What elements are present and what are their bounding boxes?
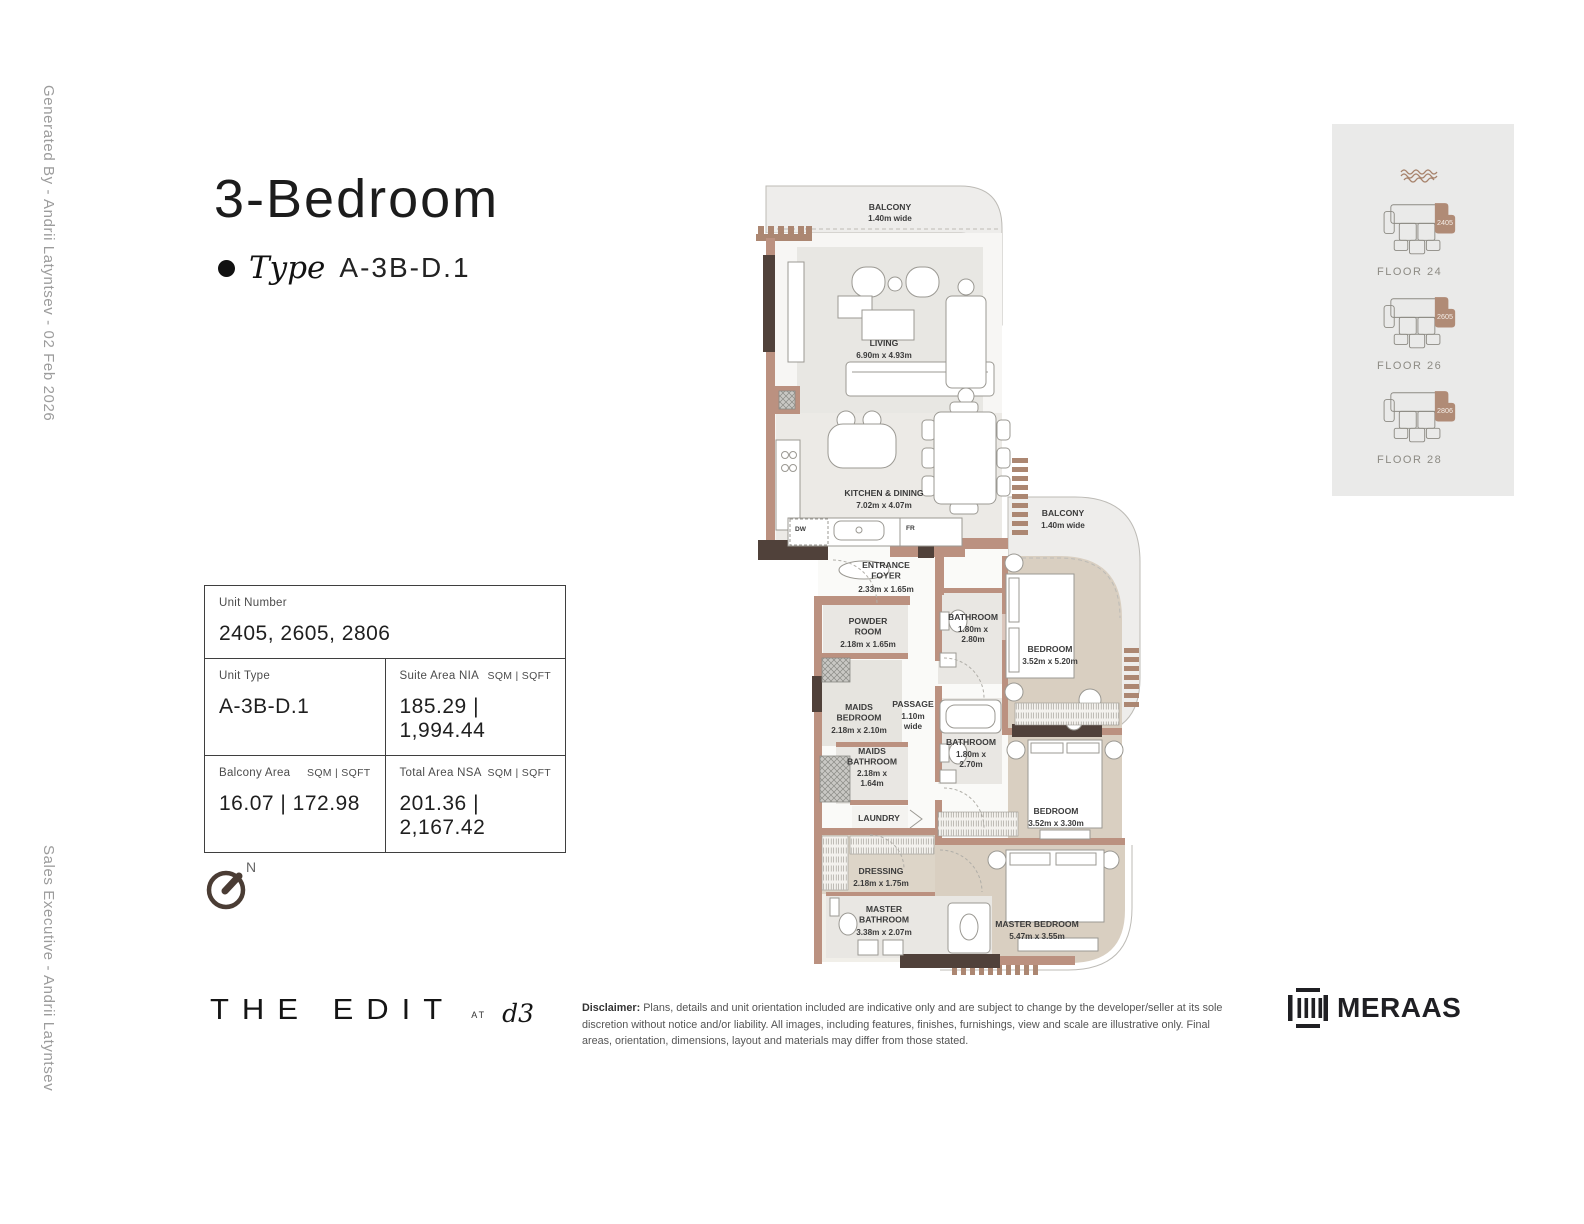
d3-logo: d3 (502, 999, 534, 1028)
meraas-logo: MERAAS (1288, 988, 1461, 1028)
unit-number-label: Unit Number (219, 597, 551, 609)
living-label: LIVING (870, 338, 899, 348)
passage-dims: 1.10mwide (901, 712, 924, 731)
balcony-area-units: SQM | SQFT (307, 767, 370, 779)
balcony-area-cell: Balcony Area SQM | SQFT 16.07 | 172.98 (205, 756, 385, 852)
meraas-wordmark: MERAAS (1337, 992, 1461, 1024)
the-edit-at: AT (471, 1010, 486, 1028)
fridge-label: FR (906, 525, 915, 532)
bedroom2-label: BEDROOM (1034, 806, 1079, 816)
kitchen-label: KITCHEN & DINING (844, 488, 924, 498)
maids-bedroom-dims: 2.18m x 2.10m (831, 726, 887, 735)
total-area-cell: Total Area NSA SQM | SQFT 201.36 | 2,167… (385, 756, 566, 852)
floor-caption-24: FLOOR 24 (1377, 266, 1469, 278)
total-area-label: Total Area NSA (400, 767, 482, 779)
bathroom2-dims: 1.80m x2.70m (956, 750, 986, 769)
page-title: 3-Bedroom (214, 168, 499, 230)
bathroom1-label: BATHROOM (948, 612, 998, 622)
floor-key-item: 2605 FLOOR 26 (1377, 292, 1469, 372)
suite-area-units: SQM | SQFT (488, 670, 551, 682)
unit-type-value: A-3B-D.1 (219, 695, 371, 719)
type-value: A-3B-D.1 (339, 252, 470, 284)
compass-north-label: N (246, 859, 256, 875)
the-edit-logo: THE EDIT AT d3 (210, 992, 534, 1028)
laundry-label: LAUNDRY (858, 813, 900, 823)
bedroom1-dims: 3.52m x 5.20m (1022, 657, 1078, 666)
master-bedroom-label: MASTER BEDROOM (995, 919, 1079, 929)
unit-number-2405: 2405 (1437, 218, 1453, 227)
balcony-right-label: BALCONY (1042, 508, 1085, 518)
dishwasher-label: DW (795, 526, 807, 533)
bedroom1-label: BEDROOM (1028, 644, 1073, 654)
generated-by-text: Generated By - Andrii Latyntsev - 02 Feb… (40, 85, 57, 421)
total-area-value: 201.36 | 2,167.42 (400, 792, 552, 840)
floor-plan: BALCONY 1.40m wide LIVING 6.90m x 4.93m … (740, 175, 1150, 987)
type-label: Type (249, 250, 325, 286)
floor-caption-26: FLOOR 26 (1377, 360, 1469, 372)
disclaimer: Disclaimer: Plans, details and unit orie… (582, 1000, 1242, 1050)
unit-type-row: Type A-3B-D.1 (218, 250, 471, 286)
balcony-right-dims: 1.40m wide (1041, 521, 1085, 530)
floor-key-item: 2405 FLOOR 24 (1377, 198, 1469, 278)
floor-caption-28: FLOOR 28 (1377, 454, 1469, 466)
dressing-label: DRESSING (859, 866, 904, 876)
dressing-dims: 2.18m x 1.75m (853, 879, 909, 888)
floor-key-item: 2806 FLOOR 28 (1377, 386, 1469, 466)
unit-number-2605: 2605 (1437, 312, 1453, 321)
unit-type-label: Unit Type (219, 670, 371, 682)
balcony-top-label: BALCONY (869, 202, 912, 212)
unit-info-table: Unit Number 2405, 2605, 2806 Unit Type A… (204, 585, 566, 853)
suite-area-value: 185.29 | 1,994.44 (400, 695, 552, 743)
balcony-area-label: Balcony Area (219, 767, 290, 779)
bedroom2-dims: 3.52m x 3.30m (1028, 819, 1084, 828)
balcony-top-dims: 1.40m wide (868, 214, 912, 223)
unit-type-cell: Unit Type A-3B-D.1 (205, 659, 385, 755)
master-bathroom-label: MASTERBATHROOM (859, 904, 909, 924)
compass-icon: N (196, 850, 268, 922)
unit-number-2806: 2806 (1437, 406, 1453, 415)
unit-number-value: 2405, 2605, 2806 (219, 622, 551, 646)
living-dims: 6.90m x 4.93m (856, 351, 912, 360)
unit-number-cell: Unit Number 2405, 2605, 2806 (205, 586, 565, 658)
sales-executive-text: Sales Executive - Andrii Latyntsev (40, 845, 57, 1091)
maids-bathroom-dims: 2.18m x1.64m (857, 769, 887, 788)
total-area-units: SQM | SQFT (488, 767, 551, 779)
bathroom2-label: BATHROOM (946, 737, 996, 747)
balcony-area-value: 16.07 | 172.98 (219, 792, 371, 816)
bullet-icon (218, 260, 235, 277)
powder-room-dims: 2.18m x 1.65m (840, 640, 896, 649)
the-edit-wordmark: THE EDIT (210, 993, 455, 1026)
suite-area-label: Suite Area NIA (400, 670, 480, 682)
disclaimer-label: Disclaimer: (582, 1002, 640, 1014)
bathroom1-dims: 1.80m x2.80m (958, 625, 988, 644)
master-bedroom-dims: 5.47m x 3.55m (1009, 932, 1065, 941)
waves-icon (1399, 168, 1447, 184)
foyer-dims: 2.33m x 1.65m (858, 585, 914, 594)
meraas-icon (1288, 988, 1328, 1028)
suite-area-cell: Suite Area NIA SQM | SQFT 185.29 | 1,994… (385, 659, 566, 755)
passage-label: PASSAGE (892, 699, 934, 709)
floor-key-panel: 2405 FLOOR 24 2605 FLOOR 26 2806 FLOOR 2… (1332, 124, 1514, 496)
master-bathroom-dims: 3.38m x 2.07m (856, 928, 912, 937)
kitchen-dims: 7.02m x 4.07m (856, 501, 912, 510)
